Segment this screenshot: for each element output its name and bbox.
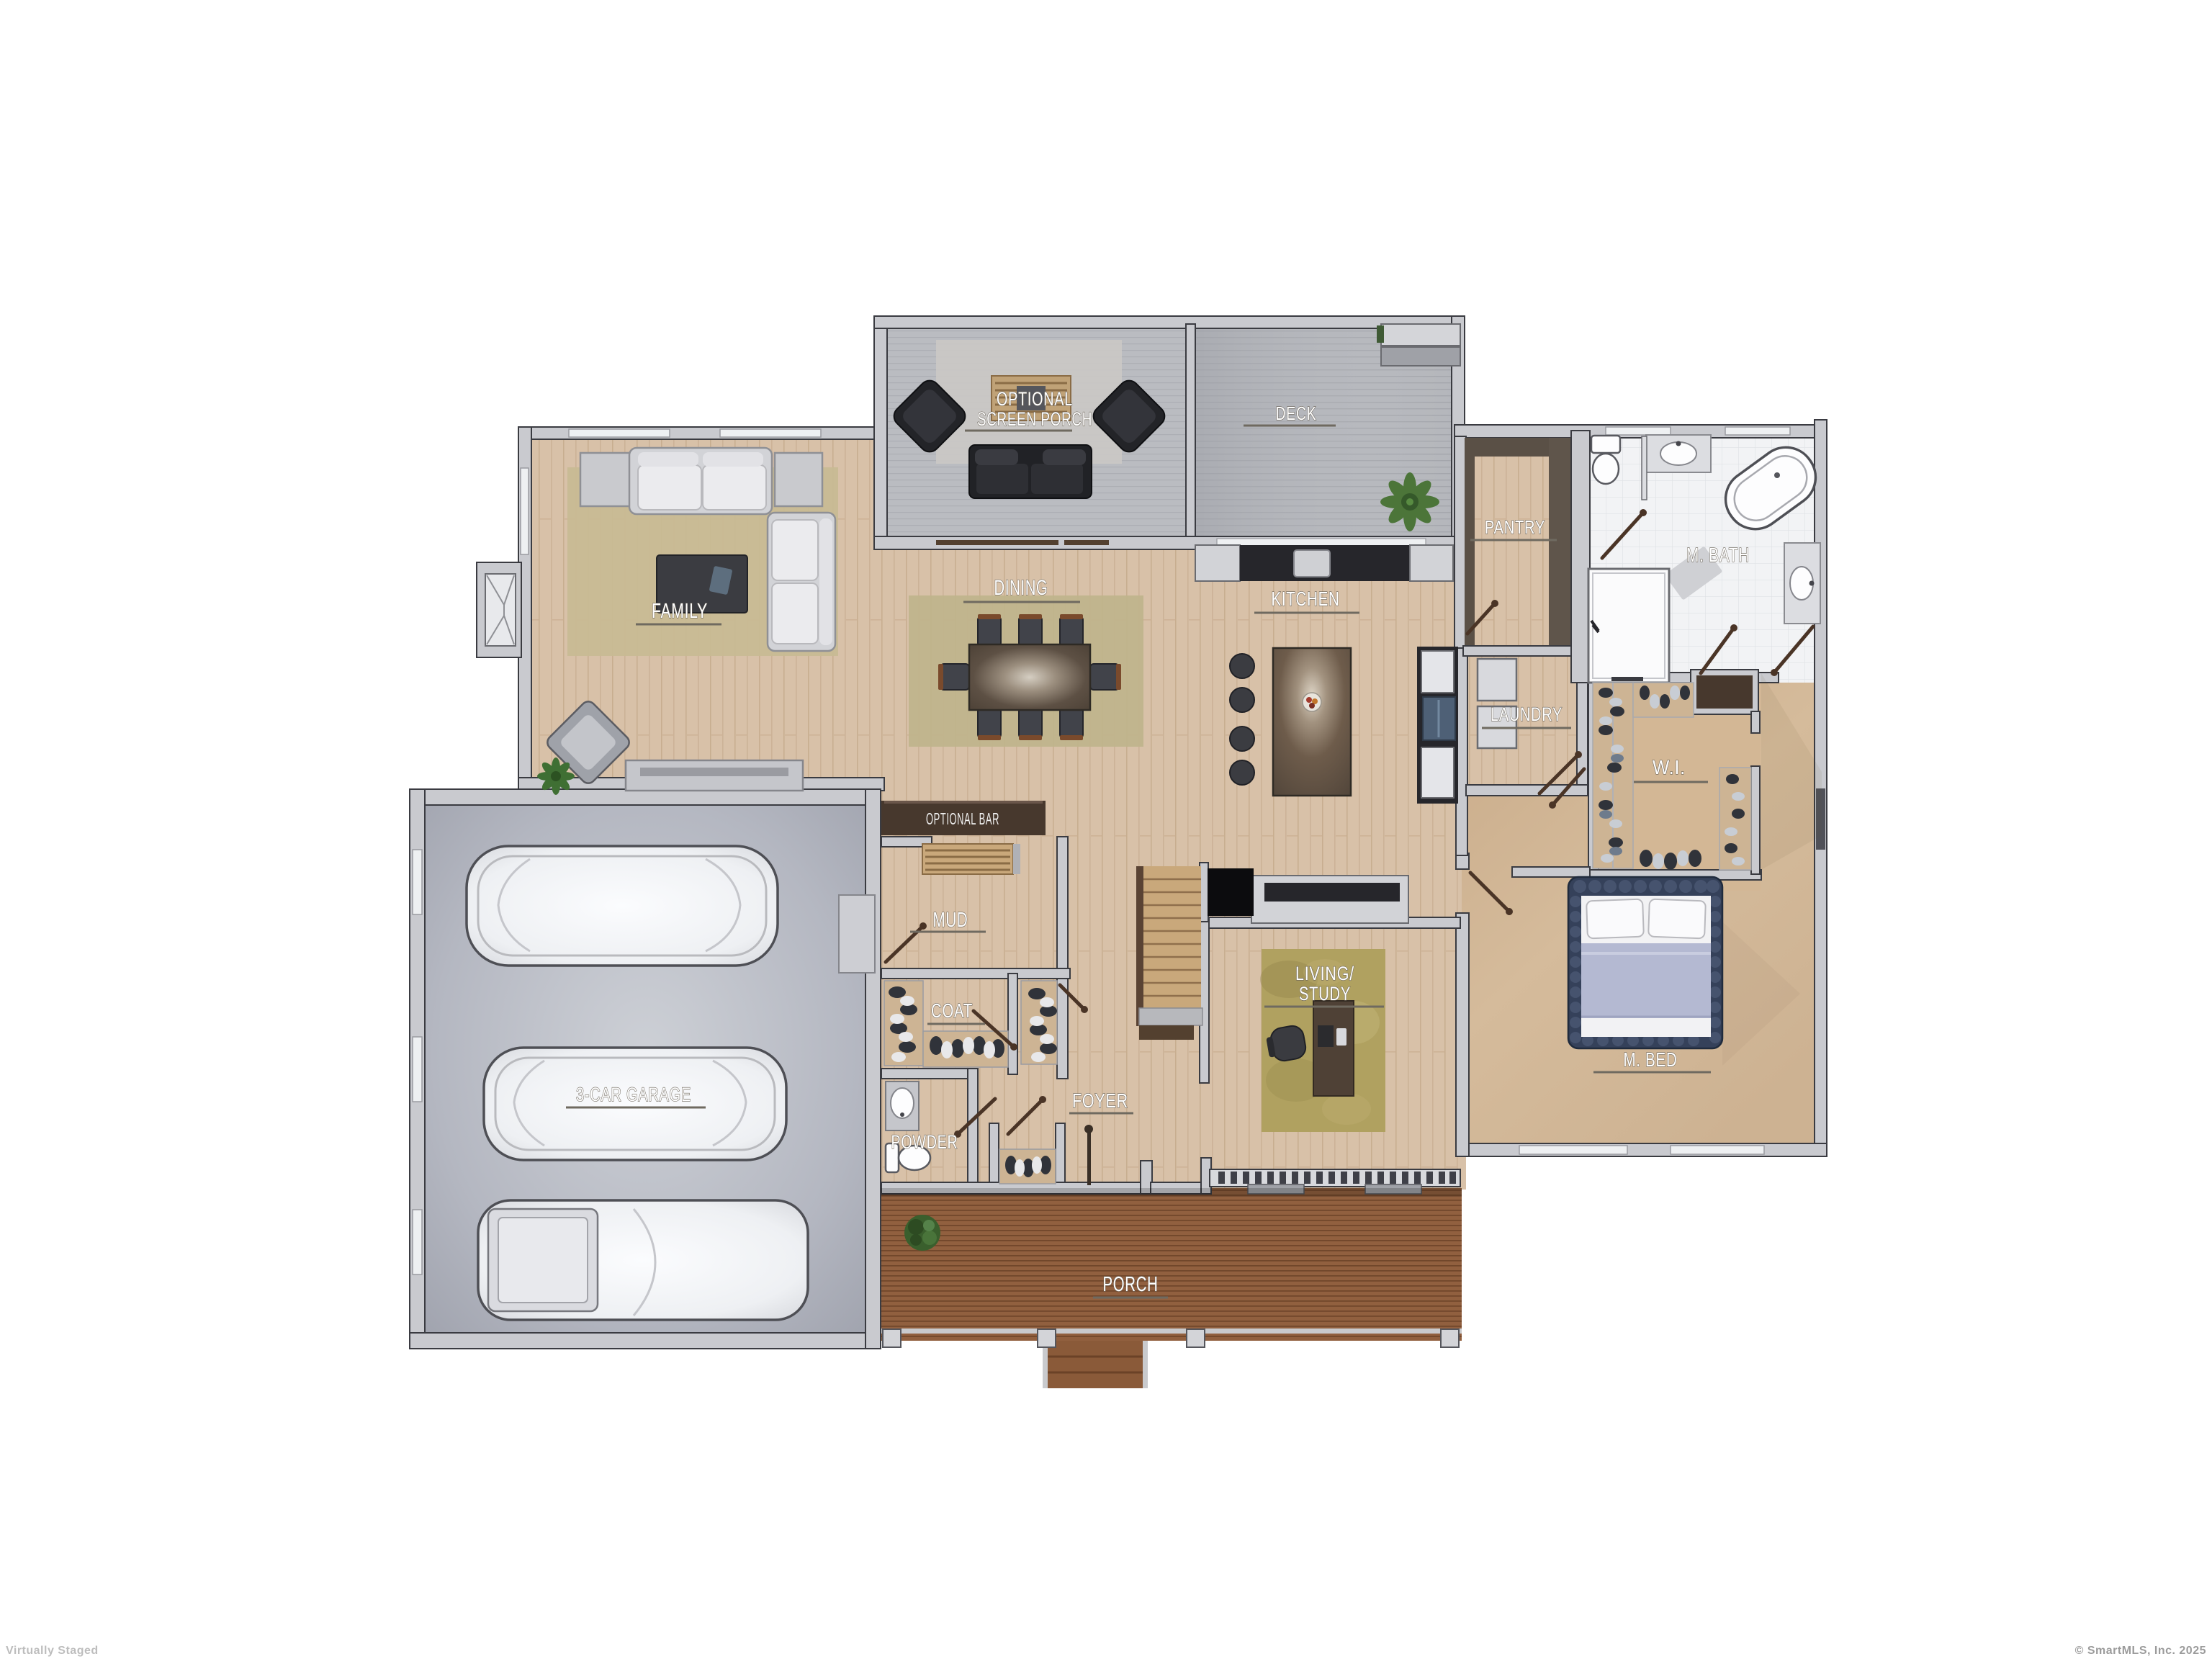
svg-text:MUD: MUD — [933, 909, 968, 932]
svg-text:PANTRY: PANTRY — [1485, 516, 1545, 538]
svg-text:M. BATH: M. BATH — [1686, 544, 1750, 566]
svg-text:DECK: DECK — [1276, 403, 1317, 424]
svg-text:W.I.: W.I. — [1653, 756, 1686, 778]
svg-text:© SmartMLS, Inc. 2025: © SmartMLS, Inc. 2025 — [2075, 1645, 2206, 1657]
svg-text:STUDY: STUDY — [1299, 983, 1351, 1004]
svg-text:3-CAR GARAGE: 3-CAR GARAGE — [576, 1084, 691, 1105]
svg-text:OPTIONAL: OPTIONAL — [997, 388, 1073, 410]
svg-text:POWDER: POWDER — [891, 1131, 958, 1153]
svg-text:M. BED: M. BED — [1624, 1048, 1678, 1071]
svg-text:PORCH: PORCH — [1103, 1273, 1159, 1296]
svg-text:SCREEN PORCH: SCREEN PORCH — [977, 408, 1092, 430]
svg-text:FOYER: FOYER — [1072, 1089, 1128, 1112]
svg-text:LIVING/: LIVING/ — [1295, 963, 1354, 984]
svg-text:Virtually Staged: Virtually Staged — [6, 1645, 99, 1657]
svg-text:DINING: DINING — [994, 576, 1048, 600]
svg-text:FAMILY: FAMILY — [652, 600, 708, 623]
svg-text:OPTIONAL BAR: OPTIONAL BAR — [926, 809, 999, 828]
svg-text:LAUNDRY: LAUNDRY — [1491, 703, 1563, 725]
svg-text:COAT: COAT — [931, 999, 973, 1022]
svg-text:KITCHEN: KITCHEN — [1272, 588, 1340, 610]
